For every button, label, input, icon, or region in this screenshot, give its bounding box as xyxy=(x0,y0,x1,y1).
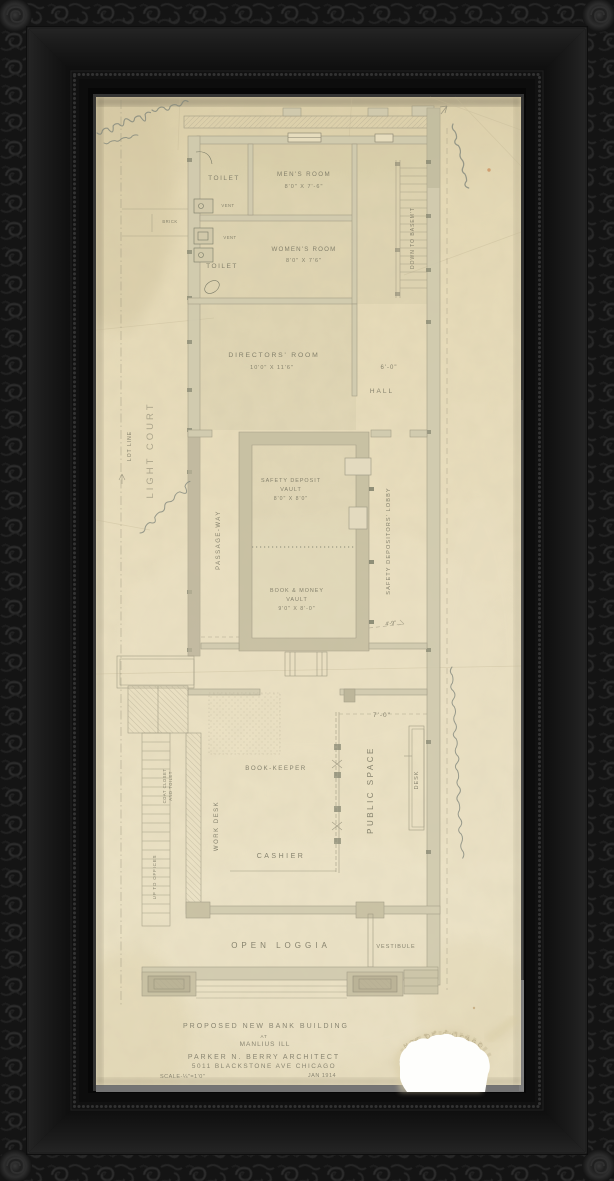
svg-text:SCALE-¼"=1'0": SCALE-¼"=1'0" xyxy=(160,1074,205,1080)
svg-text:CASHIER: CASHIER xyxy=(257,853,306,860)
svg-text:PASSAGE-WAY: PASSAGE-WAY xyxy=(216,510,222,570)
svg-text:HALL: HALL xyxy=(370,388,394,395)
svg-text:UP TO OFFICES: UP TO OFFICES xyxy=(152,855,157,900)
svg-text:TOILET: TOILET xyxy=(206,263,238,270)
svg-text:BRICK: BRICK xyxy=(162,219,177,224)
svg-text:MEN'S ROOM: MEN'S ROOM xyxy=(277,171,331,178)
svg-text:7'-0": 7'-0" xyxy=(373,712,391,719)
svg-text:BOOK-KEEPER: BOOK-KEEPER xyxy=(245,765,307,772)
svg-text:BOOK & MONEY: BOOK & MONEY xyxy=(270,588,324,594)
svg-text:VENT: VENT xyxy=(223,235,236,240)
svg-text:COAT CLOSET: COAT CLOSET xyxy=(162,769,167,804)
svg-text:MANLIUS ILL: MANLIUS ILL xyxy=(240,1041,291,1048)
svg-text:5011 BLACKSTONE AVE CHICA: 5011 BLACKSTONE AVE CHICAGO xyxy=(192,1063,336,1070)
svg-text:VENT: VENT xyxy=(221,203,234,208)
svg-text:DESK: DESK xyxy=(414,771,420,790)
svg-text:6'-0": 6'-0" xyxy=(381,365,398,371)
svg-text:WORK DESK: WORK DESK xyxy=(214,801,220,851)
svg-text:OPEN LOGGIA: OPEN LOGGIA xyxy=(231,941,331,950)
svg-text:SAFETY DEPOSIT: SAFETY DEPOSIT xyxy=(261,478,321,484)
svg-text:DOWN TO BASEM'T: DOWN TO BASEM'T xyxy=(410,207,416,269)
svg-text:8'0" X 8'0": 8'0" X 8'0" xyxy=(274,496,309,502)
svg-text:SAFETY DEPOSITORS' LOBBY: SAFETY DEPOSITORS' LOBBY xyxy=(386,487,392,594)
svg-text:9'0" X 8'-0": 9'0" X 8'-0" xyxy=(278,606,315,612)
svg-text:DIRECTORS' ROOM: DIRECTORS' ROOM xyxy=(228,352,319,359)
svg-text:LIGHT COURT: LIGHT COURT xyxy=(145,401,156,498)
svg-text:VESTIBULE: VESTIBULE xyxy=(376,944,415,950)
svg-text:WOMEN'S ROOM: WOMEN'S ROOM xyxy=(271,246,336,253)
svg-text:AT: AT xyxy=(260,1034,267,1039)
svg-text:PARKER N. BERRY ARCHITEC: PARKER N. BERRY ARCHITECT xyxy=(188,1054,340,1061)
svg-text:LOT LINE: LOT LINE xyxy=(127,431,133,461)
svg-text:AND TOILET: AND TOILET xyxy=(168,771,173,801)
svg-text:8'0" X 7'-6": 8'0" X 7'-6" xyxy=(285,184,324,190)
svg-text:VAULT: VAULT xyxy=(280,487,302,493)
svg-text:JAN 1914: JAN 1914 xyxy=(308,1073,336,1079)
svg-text:10'0" X 11'6": 10'0" X 11'6" xyxy=(250,365,294,371)
svg-text:8'0" X 7'6": 8'0" X 7'6" xyxy=(286,258,322,264)
svg-text:PROPOSED NEW BANK BUILDING: PROPOSED NEW BANK BUILDING xyxy=(183,1023,349,1030)
svg-text:TOILET: TOILET xyxy=(208,175,240,182)
svg-text:PUBLIC SPACE: PUBLIC SPACE xyxy=(366,746,375,834)
svg-text:VAULT: VAULT xyxy=(286,597,308,603)
